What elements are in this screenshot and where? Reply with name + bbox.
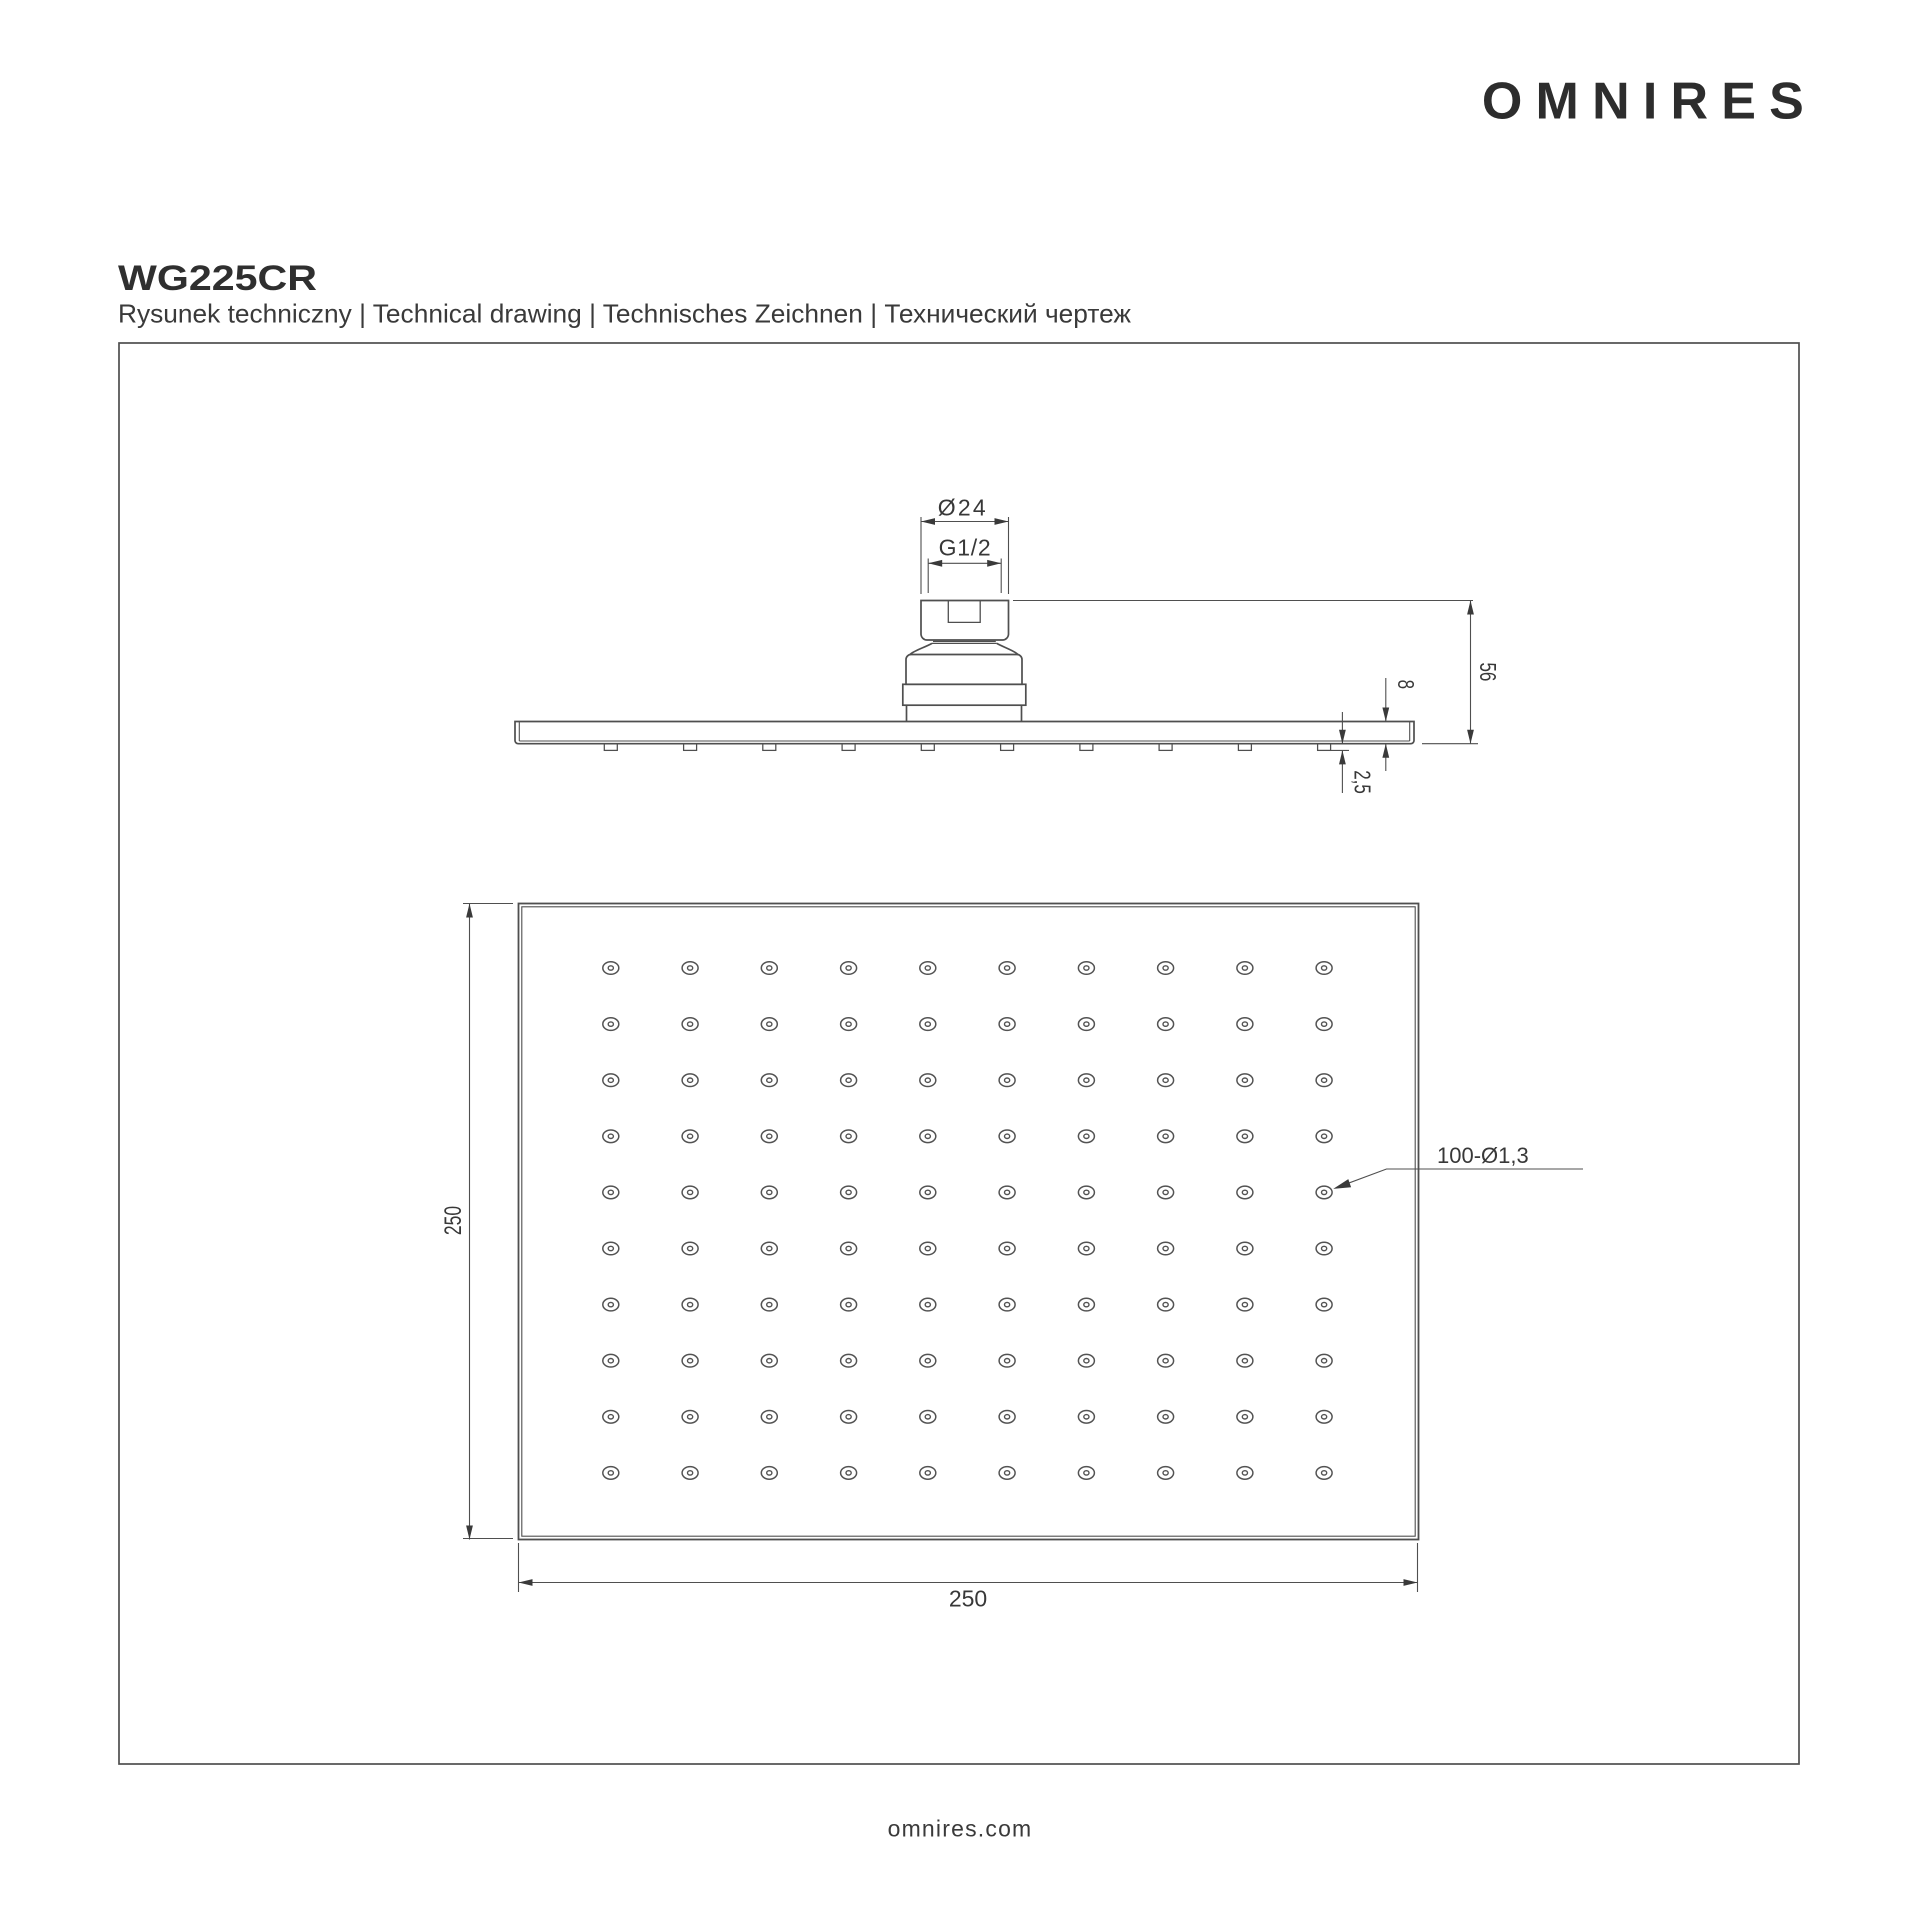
- svg-text:56: 56: [1474, 662, 1499, 681]
- svg-text:250: 250: [440, 1206, 466, 1235]
- svg-text:Rysunek techniczny | Technical: Rysunek techniczny | Technical drawing |…: [118, 301, 1132, 329]
- svg-text:2,5: 2,5: [1349, 770, 1374, 794]
- svg-text:G1/2: G1/2: [939, 535, 992, 561]
- svg-text:100-Ø1,3: 100-Ø1,3: [1437, 1143, 1529, 1168]
- svg-text:Ø24: Ø24: [938, 495, 988, 521]
- svg-text:OMNIRES: OMNIRES: [1482, 73, 1817, 131]
- svg-text:250: 250: [949, 1586, 987, 1612]
- svg-text:WG225CR: WG225CR: [118, 259, 317, 298]
- svg-text:8: 8: [1392, 680, 1417, 689]
- svg-text:omnires.com: omnires.com: [888, 1816, 1033, 1842]
